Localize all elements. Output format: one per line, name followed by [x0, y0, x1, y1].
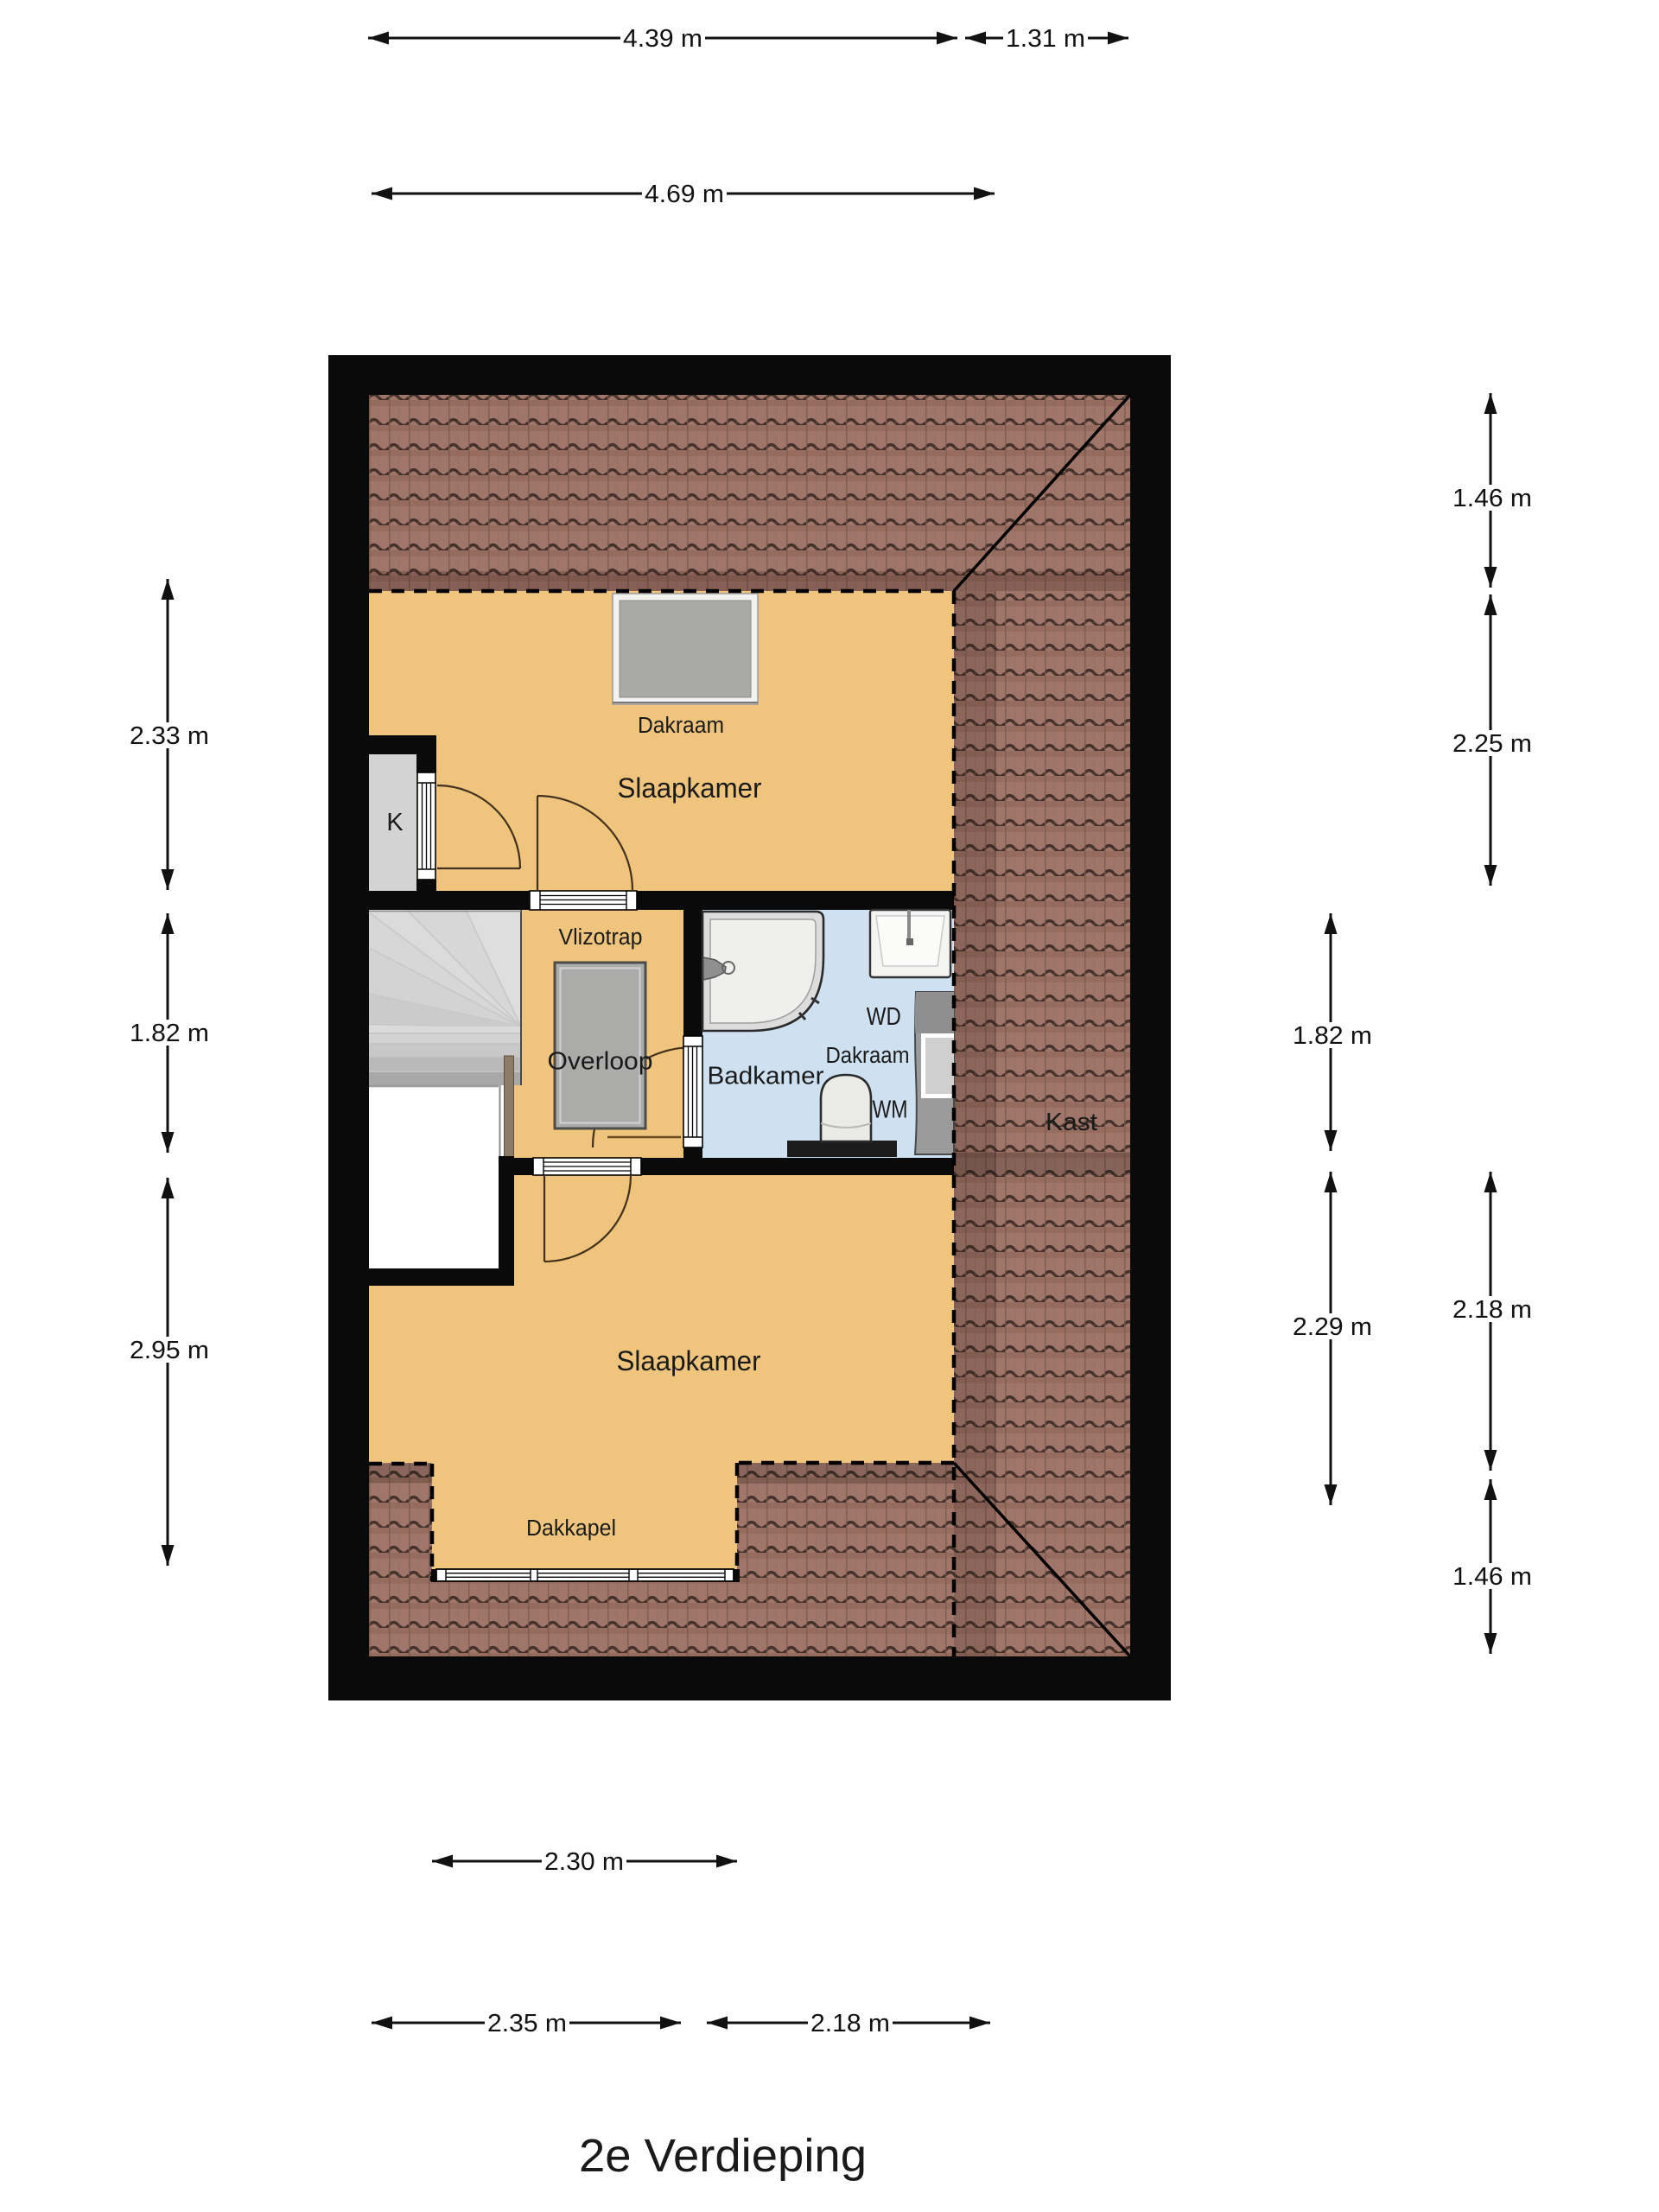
svg-text:Dakraam: Dakraam: [826, 1044, 910, 1068]
svg-text:4.39 m: 4.39 m: [623, 25, 702, 53]
svg-text:1.46 m: 1.46 m: [1452, 485, 1532, 512]
svg-text:Slaapkamer: Slaapkamer: [618, 772, 762, 804]
svg-text:2.18 m: 2.18 m: [1452, 1296, 1532, 1324]
svg-text:WD: WD: [867, 1003, 901, 1031]
svg-text:Badkamer: Badkamer: [708, 1063, 824, 1090]
svg-text:1.46 m: 1.46 m: [1452, 1563, 1532, 1591]
svg-text:2.33 m: 2.33 m: [130, 722, 209, 750]
svg-text:Vlizotrap: Vlizotrap: [559, 925, 643, 950]
svg-text:2.25 m: 2.25 m: [1452, 730, 1532, 758]
svg-text:1.31 m: 1.31 m: [1006, 25, 1085, 53]
svg-text:K: K: [386, 809, 404, 836]
svg-text:2.30 m: 2.30 m: [544, 1848, 624, 1876]
svg-text:Slaapkamer: Slaapkamer: [617, 1345, 761, 1376]
svg-text:2.29 m: 2.29 m: [1293, 1313, 1372, 1341]
svg-text:2.35 m: 2.35 m: [487, 2010, 567, 2037]
svg-text:Dakkapel: Dakkapel: [526, 1516, 616, 1541]
svg-text:WM: WM: [873, 1096, 908, 1124]
svg-text:Kast: Kast: [1046, 1109, 1097, 1136]
svg-text:2.18 m: 2.18 m: [810, 2010, 890, 2037]
svg-text:1.82 m: 1.82 m: [1293, 1022, 1372, 1050]
svg-text:Overloop: Overloop: [548, 1048, 653, 1076]
svg-text:1.82 m: 1.82 m: [130, 1020, 209, 1047]
svg-text:2.95 m: 2.95 m: [130, 1337, 209, 1364]
svg-text:2e Verdieping: 2e Verdieping: [579, 2130, 867, 2182]
svg-text:4.69 m: 4.69 m: [645, 181, 724, 208]
svg-text:Dakraam: Dakraam: [638, 714, 724, 738]
